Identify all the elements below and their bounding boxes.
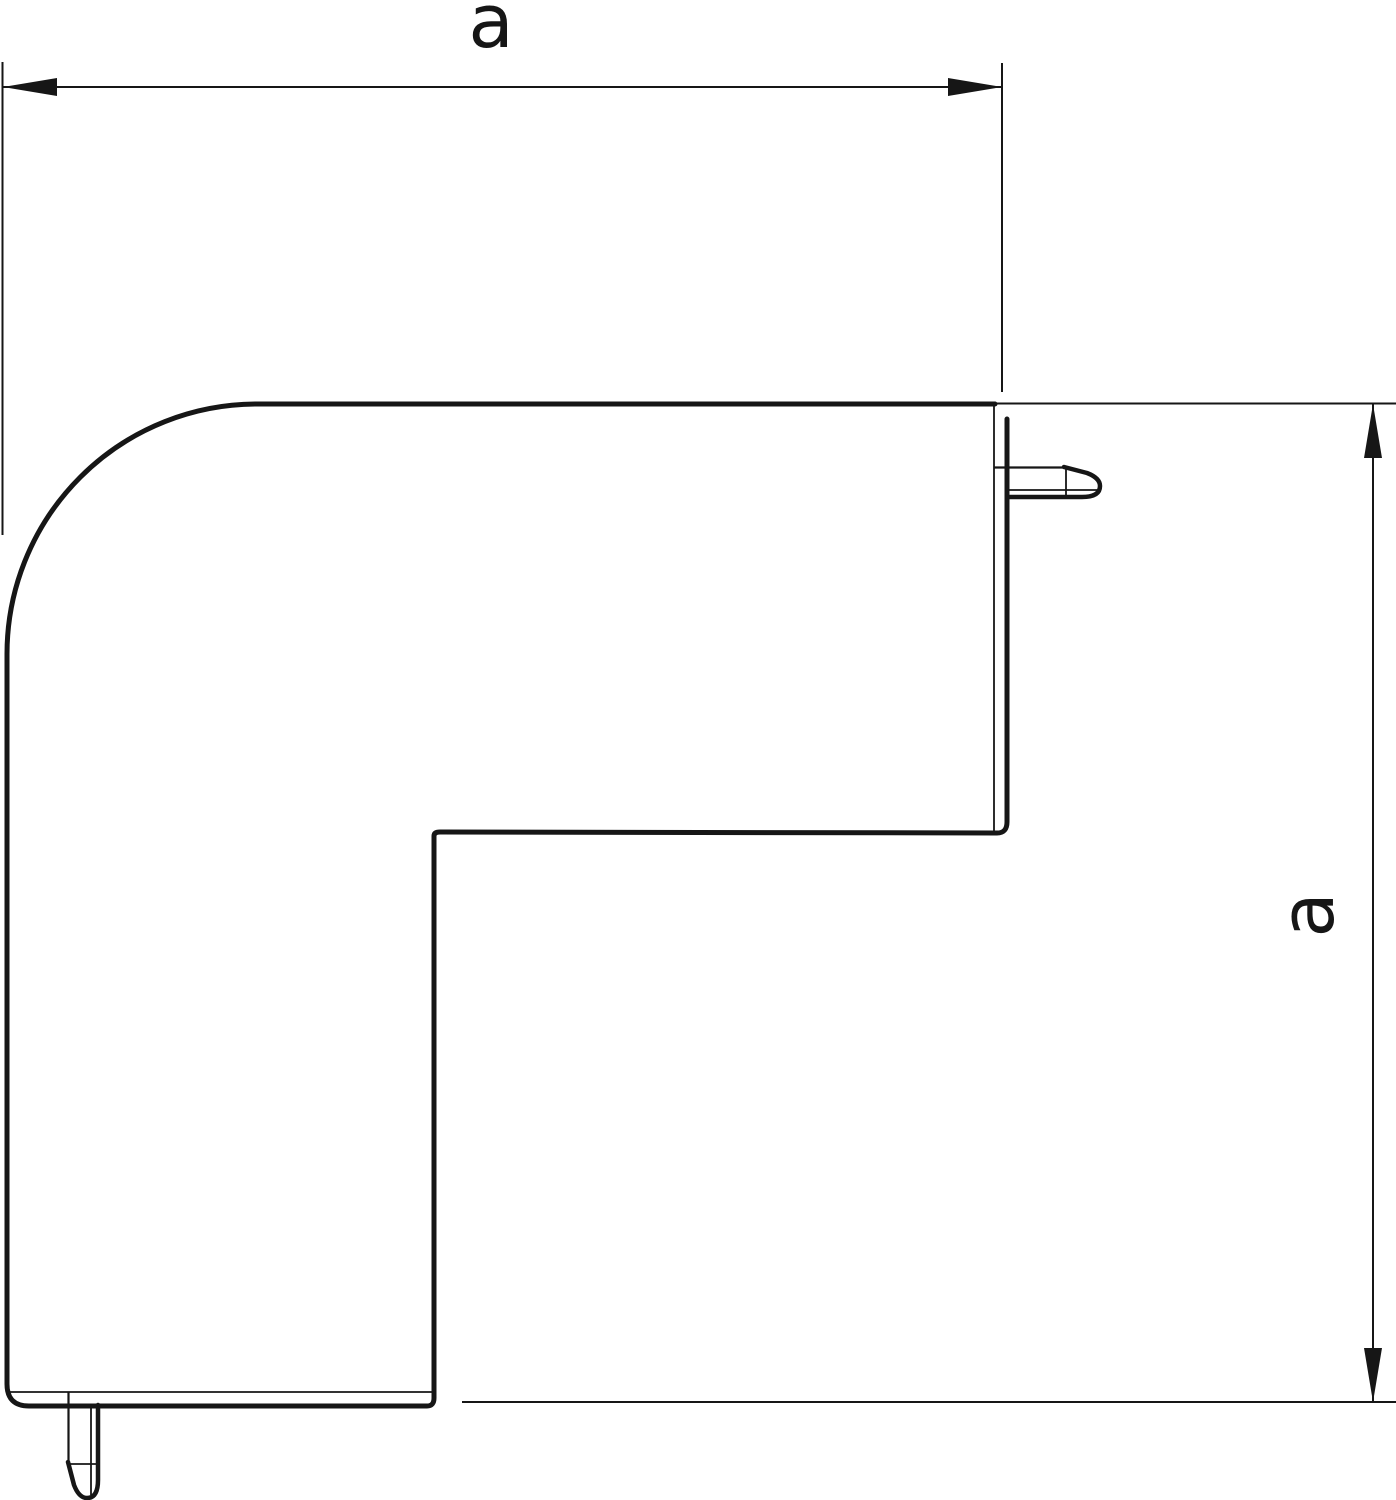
vertical-dimension-label: a [1271, 892, 1345, 937]
corner-piece-drawing [0, 0, 1396, 1500]
dimension-lines [3, 62, 1396, 1402]
part-outline [7, 404, 1100, 1498]
arrowhead-down-icon [1364, 1348, 1382, 1402]
latch-tab-right [1007, 467, 1100, 497]
horizontal-dimension-label: a [468, 0, 513, 59]
drawing-canvas: a a [0, 0, 1396, 1500]
latch-tab-bottom [68, 1405, 98, 1498]
cover-outer-contour [7, 404, 1007, 1406]
arrowhead-up-icon [1364, 404, 1382, 458]
arrowhead-left-icon [3, 78, 57, 96]
arrowhead-right-icon [948, 78, 1002, 96]
